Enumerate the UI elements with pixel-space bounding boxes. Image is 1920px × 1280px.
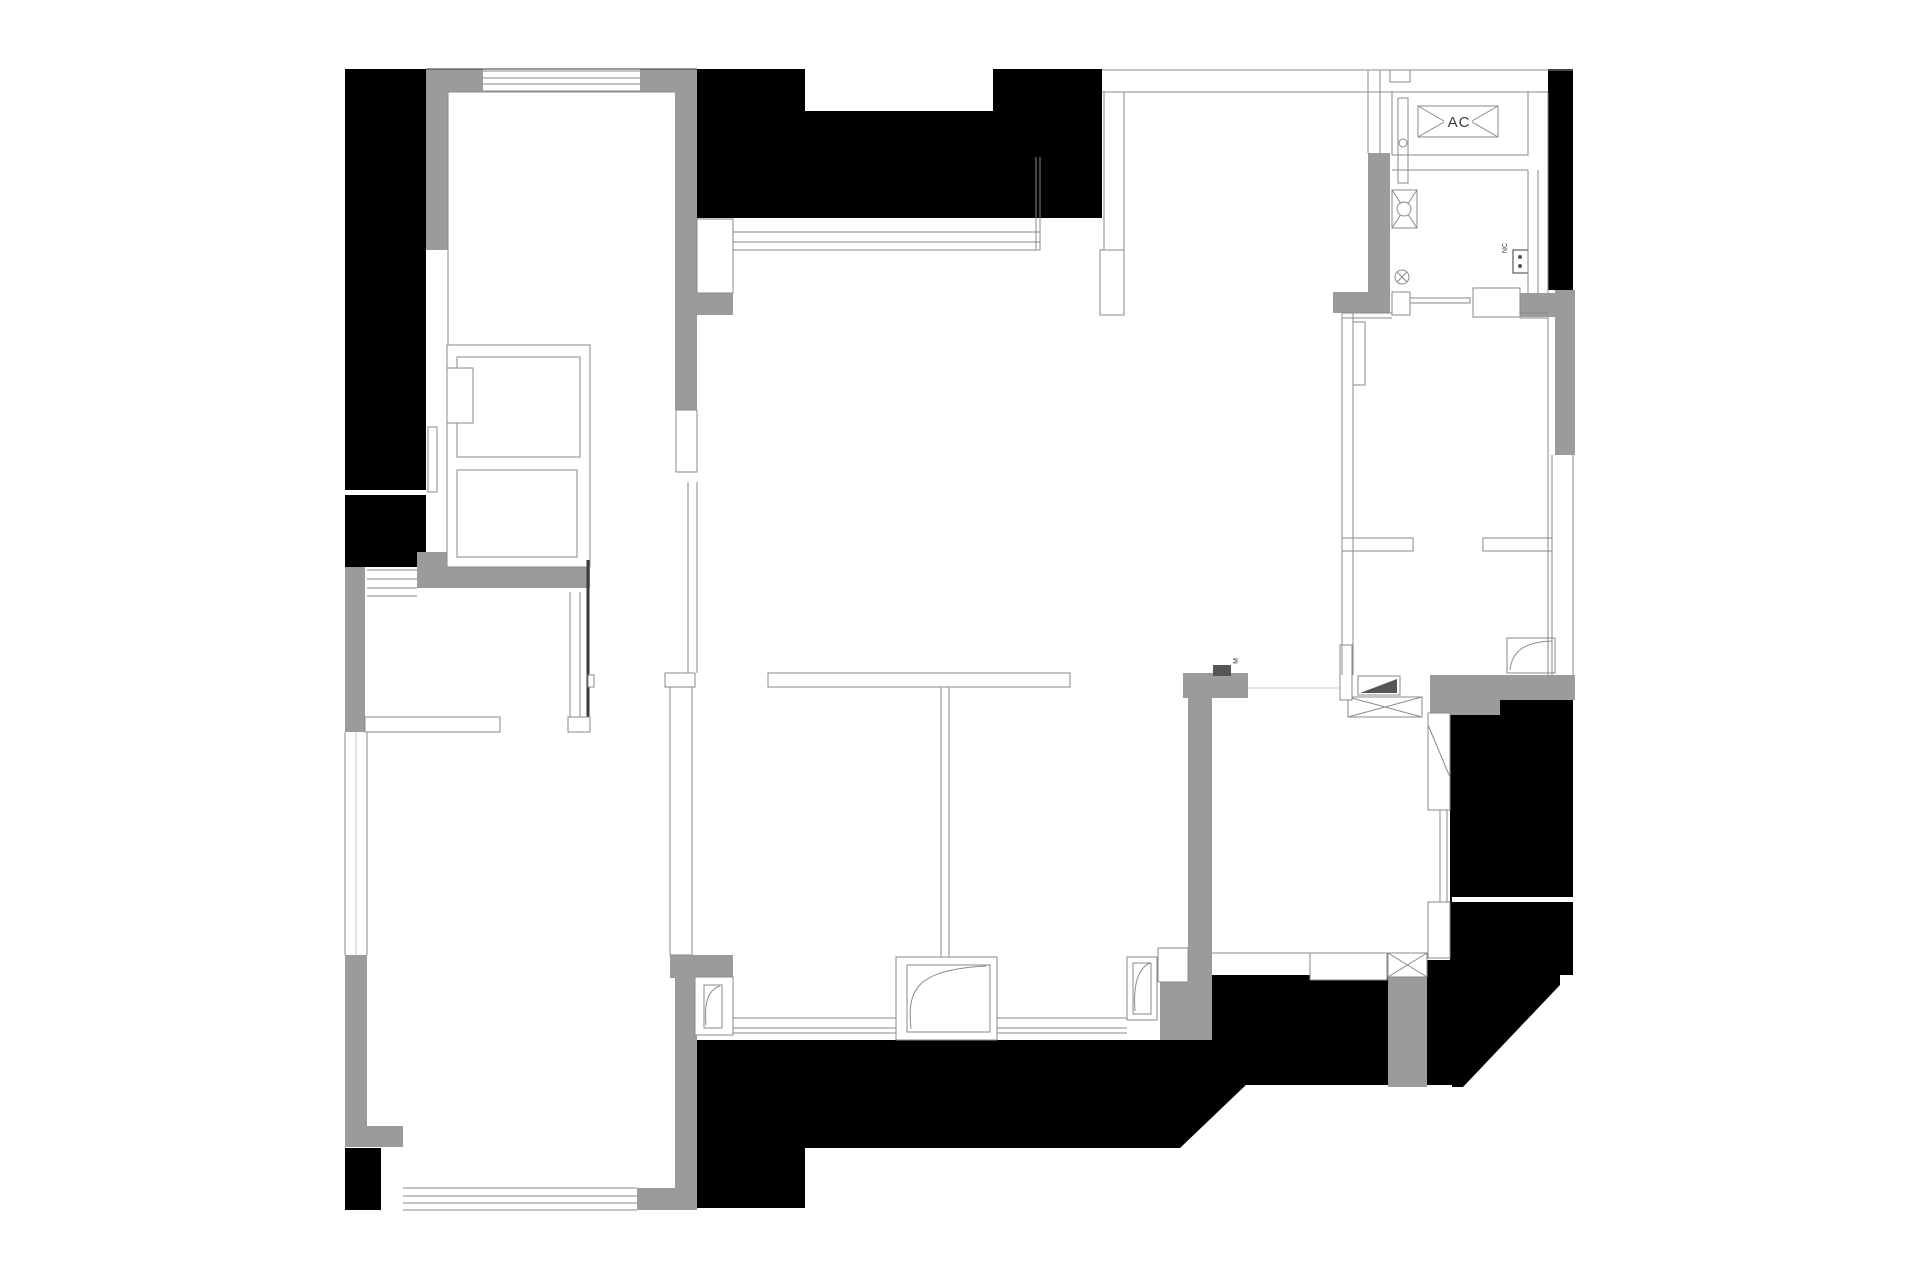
wall-gray-bedroom-east bbox=[1555, 290, 1575, 455]
wall-gray-bath-southwest bbox=[1333, 292, 1390, 313]
left-door-leaf bbox=[704, 985, 722, 1028]
floor-plan-svg: ACNCM bbox=[0, 0, 1920, 1280]
wall-gray-closet-south bbox=[1430, 675, 1575, 700]
wall-gray-top-a bbox=[426, 69, 483, 92]
wall-black-right-bridge bbox=[1427, 960, 1452, 1085]
wall-gray-partition-south bbox=[675, 978, 697, 1210]
wall-black-left-mid bbox=[345, 495, 426, 567]
wall-gray-hall-vertical bbox=[1188, 698, 1212, 948]
wall-black-top-notch bbox=[805, 69, 993, 111]
wardrobe-upper bbox=[457, 357, 580, 457]
wall-black-bottom-left-corner bbox=[345, 1148, 381, 1210]
wall-gray-bath-west bbox=[1368, 153, 1390, 293]
wall-black-right-top bbox=[1548, 69, 1573, 290]
room2-south-wall-a bbox=[365, 717, 500, 732]
window-post-left bbox=[697, 219, 733, 293]
balcony-door-leaf bbox=[907, 965, 990, 1032]
wall-gray-hall-bar bbox=[1183, 673, 1248, 698]
ac-label: AC bbox=[1448, 114, 1471, 131]
slide-door-pocket bbox=[1473, 288, 1520, 317]
counter-strip bbox=[1310, 953, 1387, 980]
partition-cap bbox=[665, 673, 695, 687]
wall-gray-left-top bbox=[426, 69, 448, 250]
door-channel bbox=[1428, 713, 1450, 810]
partition-main bbox=[670, 687, 692, 955]
wall-gray-room2-west bbox=[345, 567, 365, 732]
nc-label: NC bbox=[1502, 243, 1509, 253]
wall-gray-stub bbox=[697, 293, 733, 315]
pocket-strip-left bbox=[428, 427, 437, 492]
window-sill-right bbox=[1100, 250, 1124, 315]
duct-cap bbox=[1399, 139, 1407, 147]
dining-screen-top bbox=[768, 673, 1070, 687]
door-tick-room2 bbox=[588, 675, 594, 687]
wardrobe-side bbox=[447, 368, 473, 423]
closet-step bbox=[1390, 70, 1410, 82]
nc-fixture bbox=[1513, 250, 1528, 273]
wall-black-bottom-band bbox=[805, 1040, 1180, 1148]
kitchen-pocket-jamb bbox=[1158, 948, 1188, 982]
slide-door-frame bbox=[1392, 292, 1410, 315]
wall-black-left-divider bbox=[345, 490, 426, 495]
room2-south-wall-b bbox=[568, 717, 590, 732]
bedroom-south-wall-b bbox=[1483, 538, 1552, 551]
wall-black-right-column bbox=[1450, 695, 1573, 975]
bedroom-door-leaf bbox=[1353, 322, 1365, 385]
wall-gray-pocket-strip bbox=[1388, 977, 1427, 1087]
door-channel-lower bbox=[1428, 902, 1450, 958]
partition-segment bbox=[676, 410, 697, 472]
wall-black-right-column-notch bbox=[1452, 897, 1573, 902]
wall-black-bottom-band-left bbox=[697, 1040, 805, 1208]
slide-door-panel bbox=[1410, 298, 1470, 303]
exhaust-fan-hub bbox=[1397, 202, 1411, 216]
nc-dot-2 bbox=[1518, 264, 1522, 268]
wardrobe-lower bbox=[457, 470, 577, 557]
wall-gray-room1-east bbox=[675, 69, 697, 410]
wall-gray-left-step bbox=[367, 1126, 403, 1147]
switch-fixture bbox=[1213, 665, 1231, 676]
wall-gray-kitchen-door-top bbox=[670, 955, 733, 978]
floor-plan-page: ACNCM bbox=[0, 0, 1920, 1280]
kitchen-door-leaf bbox=[1133, 963, 1151, 1014]
m-label: M bbox=[1233, 658, 1240, 664]
wall-gray-left-lower bbox=[345, 955, 367, 1147]
wall-black-left-upper bbox=[345, 69, 426, 490]
nc-dot-1 bbox=[1518, 255, 1522, 259]
